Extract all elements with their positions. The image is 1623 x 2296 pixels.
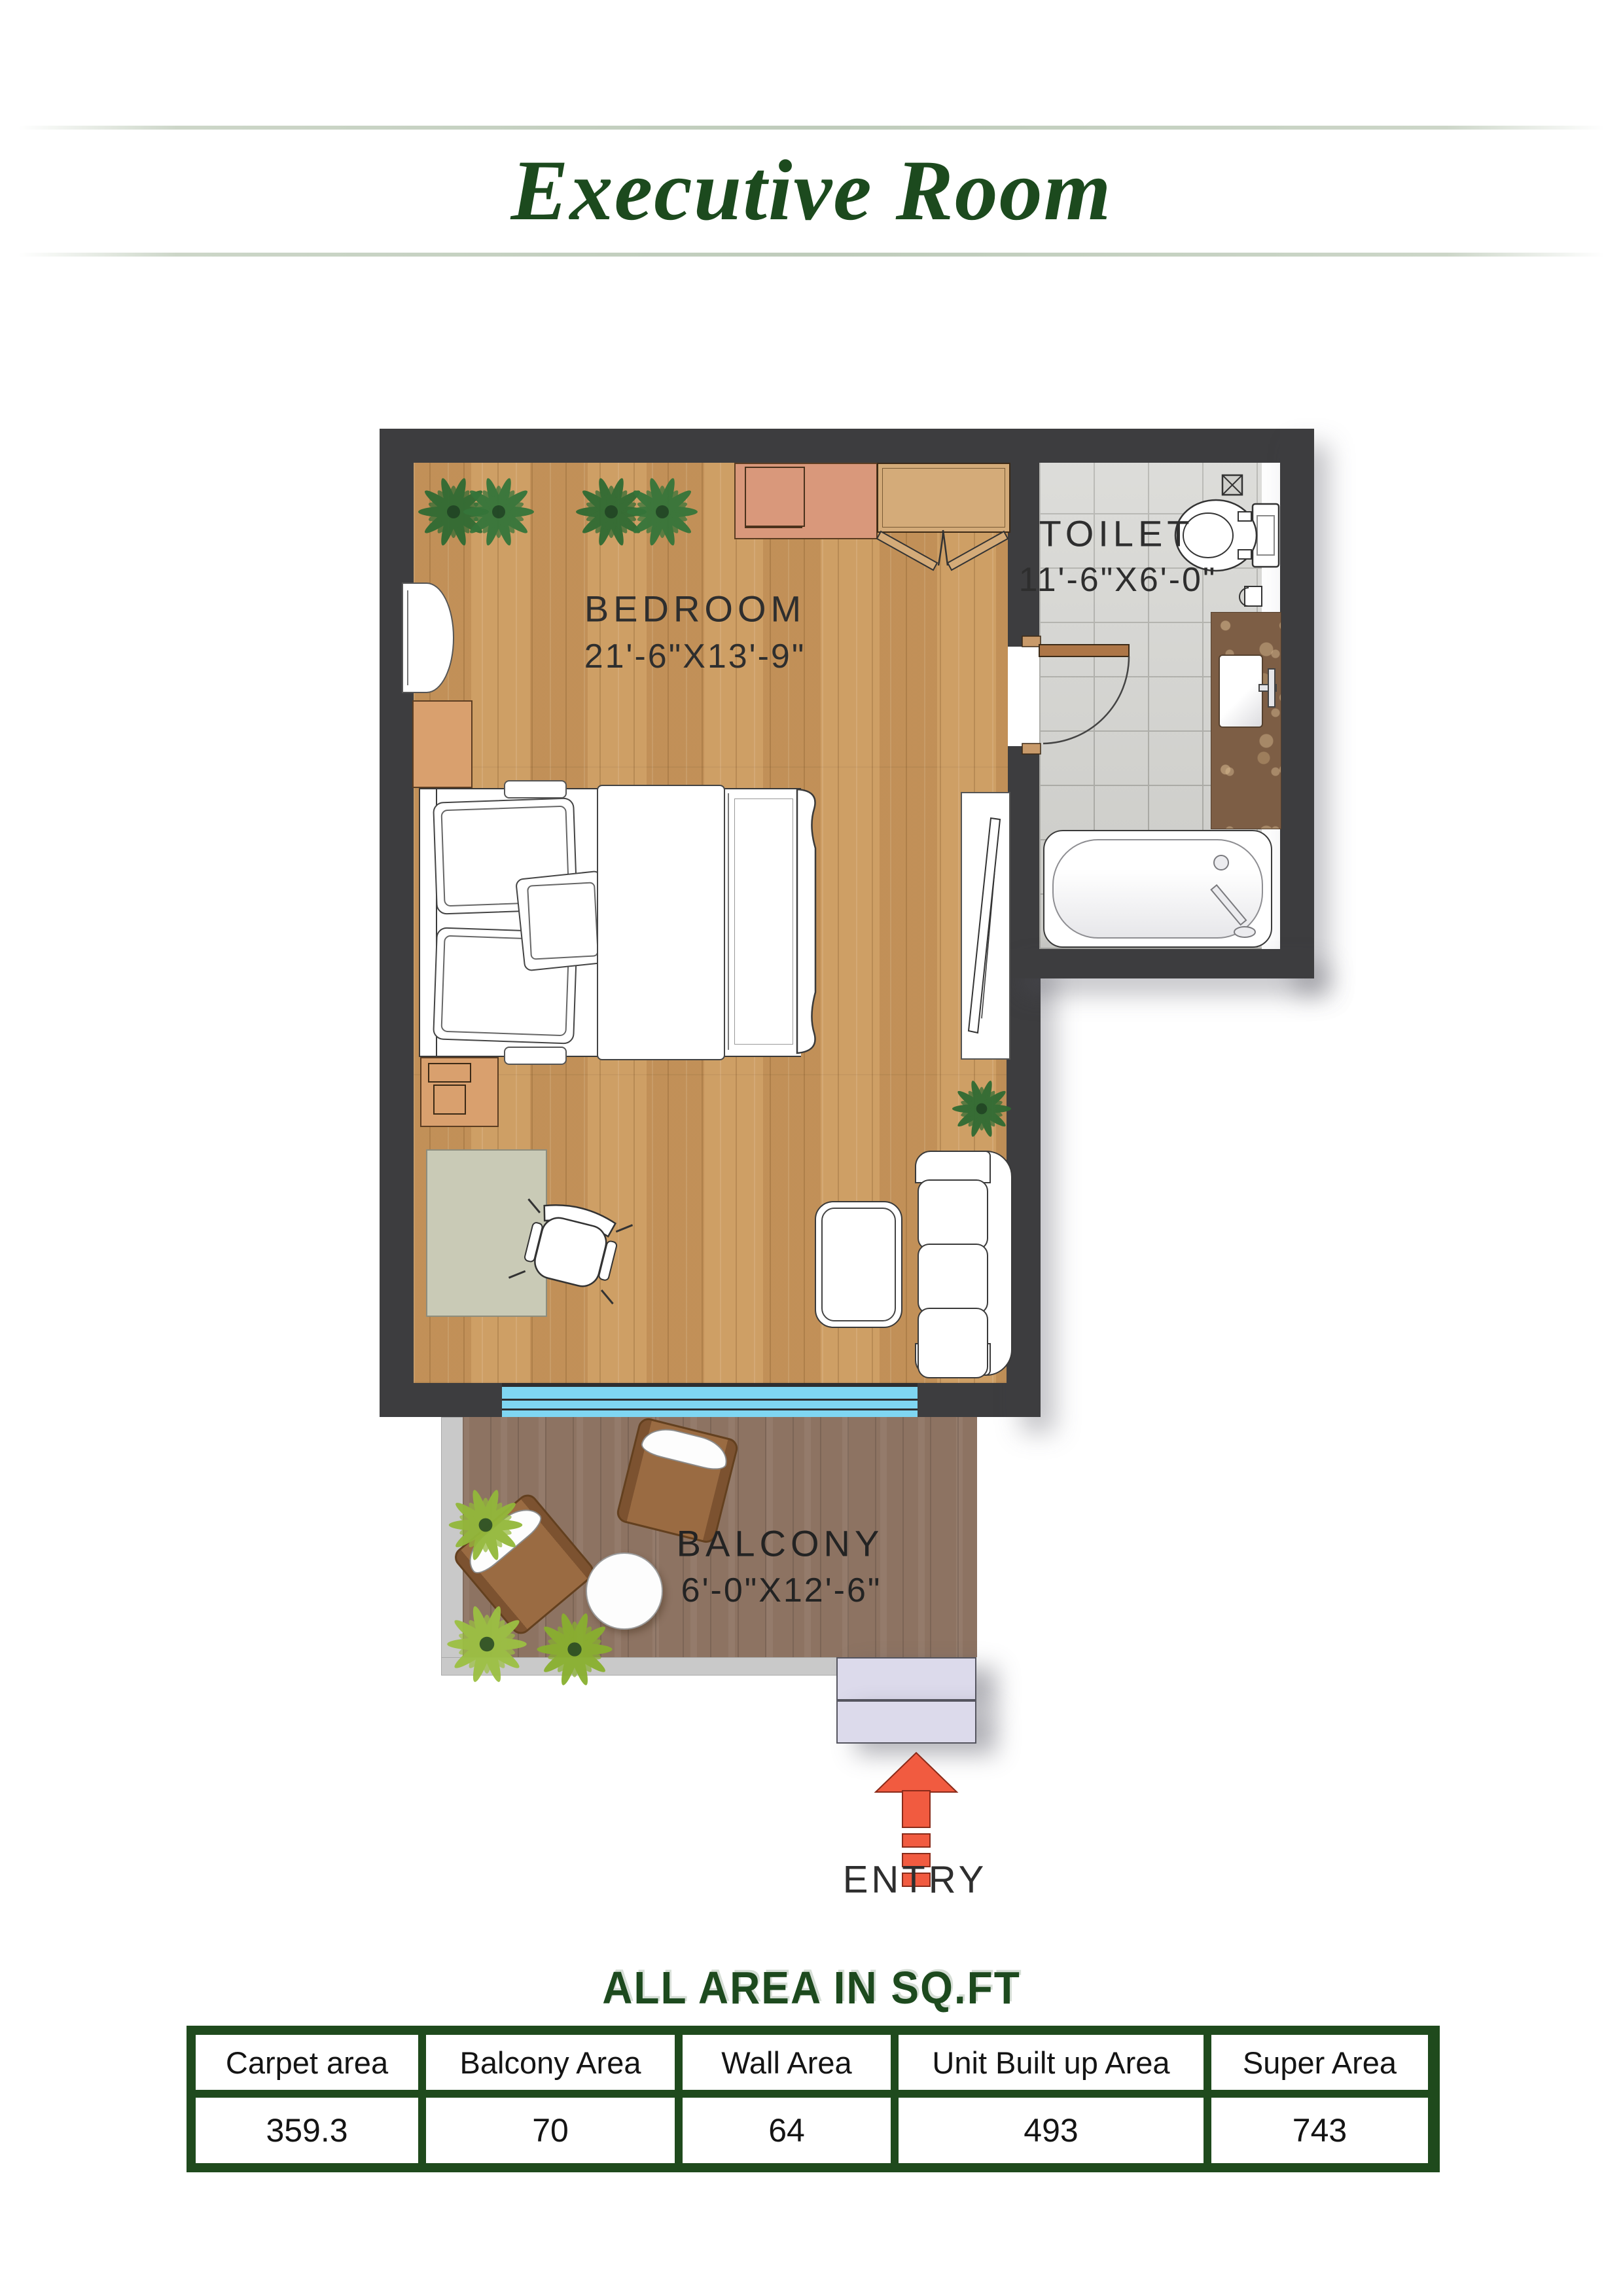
bathtub-basin <box>1052 839 1263 939</box>
area-units-heading: ALL AREA IN SQ.FT <box>0 1962 1623 2014</box>
bed-duvet <box>597 785 725 1060</box>
area-table-header: Wall Area <box>683 2035 891 2090</box>
bathtub <box>1043 830 1272 948</box>
bed-sheet <box>728 793 798 1050</box>
dresser <box>734 463 878 539</box>
entry-label: ENTRY <box>843 1858 988 1902</box>
desk-console <box>433 1085 466 1115</box>
sofa <box>915 1151 1010 1373</box>
computer-desk <box>420 1057 499 1127</box>
study-desk <box>426 1149 547 1317</box>
area-table-value: 493 <box>899 2098 1204 2163</box>
dresser-handle <box>745 527 802 528</box>
bedside-table <box>412 700 473 788</box>
dresser-drawer <box>745 467 805 527</box>
plant-icon <box>949 1076 1014 1141</box>
balcony-dims: 6'-0"X12'-6" <box>681 1571 882 1610</box>
area-table-header: Unit Built up Area <box>899 2035 1204 2090</box>
sofa-arm <box>915 1151 991 1183</box>
area-table-value: 743 <box>1211 2098 1428 2163</box>
plant-icon <box>459 473 538 551</box>
bed <box>419 788 801 1057</box>
wall-partition-lower <box>1008 746 1039 949</box>
area-table-value: 70 <box>426 2098 675 2163</box>
wall-toilet-bottom <box>1007 949 1314 978</box>
plant-icon <box>445 1484 527 1566</box>
toilet-label: TOILET <box>1039 512 1194 555</box>
wardrobe <box>877 463 1010 533</box>
toilet-dims: 11'-6"X6'-0" <box>1019 560 1217 600</box>
plant-icon <box>533 1607 616 1691</box>
sofa-cushion <box>918 1179 988 1250</box>
mirror-inner-line <box>407 590 408 685</box>
wall-left <box>380 429 414 1417</box>
area-table: Carpet area Balcony Area Wall Area Unit … <box>187 2026 1440 2172</box>
wall-toilet-right <box>1280 429 1314 978</box>
bedroom-dims: 21'-6"X13'-9" <box>584 637 806 676</box>
area-table-header: Balcony Area <box>426 2035 675 2090</box>
area-table-header: Super Area <box>1211 2035 1428 2090</box>
sofa-cushion <box>918 1244 988 1314</box>
entry-steps <box>836 1700 976 1744</box>
bedroom-label: BEDROOM <box>584 588 806 630</box>
floor-plan: BEDROOM 21'-6"X13'-9" TOILET 11'-6"X6'-0… <box>0 0 1623 2296</box>
floor-plan-sheet: Executive Room <box>0 0 1623 2296</box>
entry-steps <box>836 1657 976 1700</box>
coffee-table <box>815 1201 902 1328</box>
area-table-value: 359.3 <box>196 2098 418 2163</box>
plant-icon <box>443 1600 531 1689</box>
plant-icon <box>623 473 702 551</box>
desk-keyboard <box>428 1063 471 1083</box>
wall-partition-upper <box>1008 463 1039 647</box>
wall-top <box>380 429 1314 463</box>
vanity-sink <box>1219 655 1263 728</box>
balcony-label: BALCONY <box>677 1522 884 1565</box>
tv-console <box>961 792 1010 1060</box>
balcony-window <box>502 1383 918 1417</box>
bed-leg-tab <box>504 1047 567 1065</box>
area-table-value: 64 <box>683 2098 891 2163</box>
sofa-cushion <box>918 1308 988 1378</box>
dressing-mirror-unit <box>402 583 454 693</box>
area-table-header: Carpet area <box>196 2035 418 2090</box>
bed-leg-tab <box>504 780 567 798</box>
wall-bottom-left-segment <box>380 1383 502 1417</box>
wardrobe-top-line <box>882 468 1005 528</box>
